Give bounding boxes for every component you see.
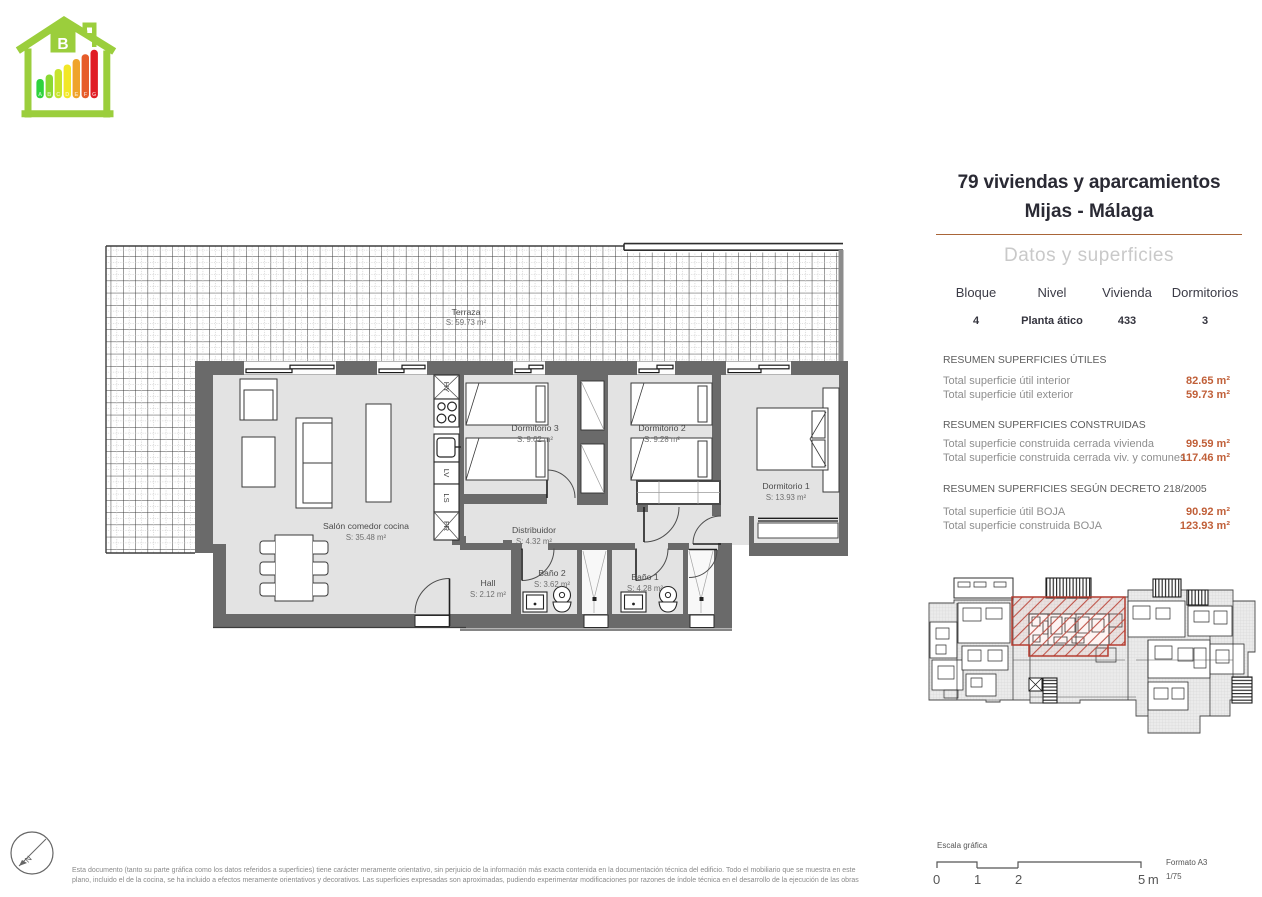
svg-text:Salón comedor cocina: Salón comedor cocina <box>323 521 409 531</box>
svg-text:D: D <box>65 92 69 98</box>
svg-text:LS: LS <box>442 493 451 502</box>
svg-text:B: B <box>47 92 51 98</box>
svg-text:Terraza: Terraza <box>452 307 481 317</box>
svg-text:S: 35.48 m²: S: 35.48 m² <box>346 533 387 542</box>
svg-text:G: G <box>92 92 96 98</box>
svg-text:B: B <box>57 36 68 53</box>
svg-text:Dormitorio 1: Dormitorio 1 <box>762 481 809 491</box>
svg-text:S: 3.62 m²: S: 3.62 m² <box>534 580 570 589</box>
svg-text:S: 13.93 m²: S: 13.93 m² <box>766 493 807 502</box>
svg-text:Baño 2: Baño 2 <box>538 568 566 578</box>
svg-text:S: 9.28 m²: S: 9.28 m² <box>644 435 680 444</box>
svg-text:S: 4.32 m²: S: 4.32 m² <box>516 537 552 546</box>
svg-text:Hall: Hall <box>481 578 496 588</box>
svg-text:S: 2.12 m²: S: 2.12 m² <box>470 590 506 599</box>
svg-text:A: A <box>38 92 42 98</box>
svg-text:Distribuidor: Distribuidor <box>512 525 556 535</box>
svg-text:LV: LV <box>442 469 451 478</box>
svg-text:S: 9.62 m²: S: 9.62 m² <box>517 435 553 444</box>
svg-text:S: 59.73 m²: S: 59.73 m² <box>446 318 487 327</box>
svg-text:Baño 1: Baño 1 <box>631 572 659 582</box>
svg-text:S: 4.28 m²: S: 4.28 m² <box>627 584 663 593</box>
svg-text:FR: FR <box>442 521 451 532</box>
svg-text:Dormitorio 2: Dormitorio 2 <box>638 423 685 433</box>
svg-text:Dormitorio 3: Dormitorio 3 <box>511 423 558 433</box>
svg-text:C: C <box>56 92 60 98</box>
svg-text:HY: HY <box>442 382 451 392</box>
svg-text:E: E <box>74 92 78 98</box>
